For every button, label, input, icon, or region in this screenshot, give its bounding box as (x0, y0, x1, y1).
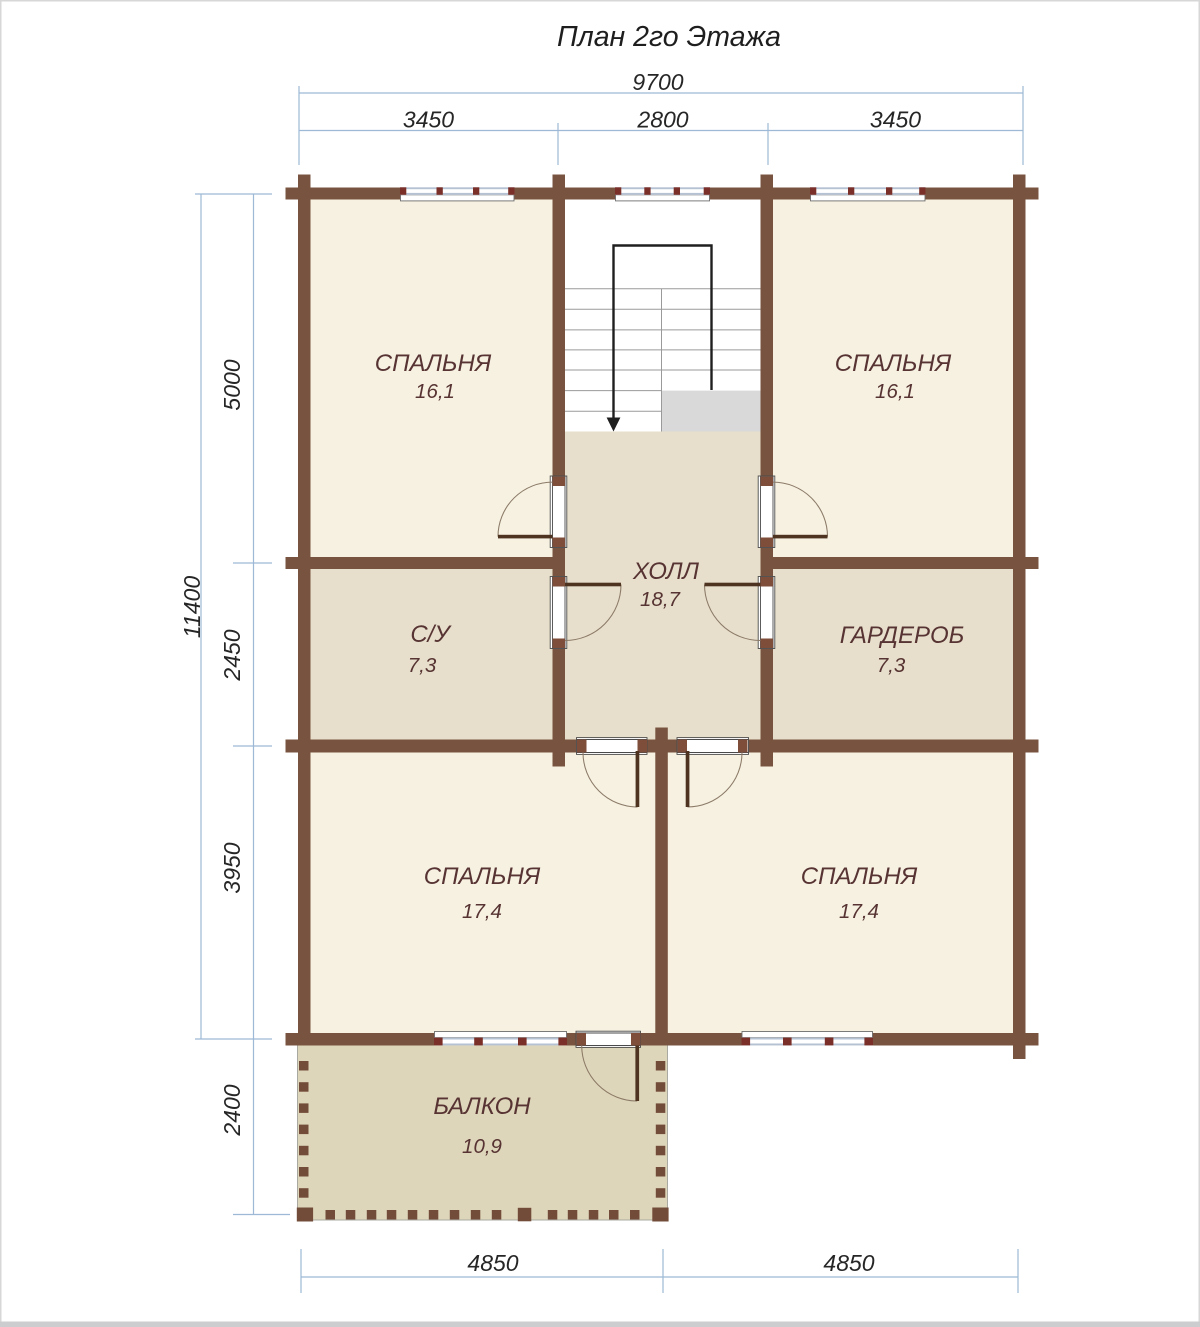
svg-text:16,1: 16,1 (415, 380, 455, 403)
svg-text:ХОЛЛ: ХОЛЛ (632, 558, 700, 585)
svg-text:4850: 4850 (823, 1250, 874, 1276)
svg-text:10,9: 10,9 (462, 1135, 502, 1158)
svg-text:7,3: 7,3 (408, 654, 437, 677)
svg-text:18,7: 18,7 (640, 588, 681, 611)
svg-text:16,1: 16,1 (875, 380, 915, 403)
svg-text:СПАЛЬНЯ: СПАЛЬНЯ (375, 350, 492, 377)
svg-text:9700: 9700 (632, 69, 683, 95)
svg-text:3450: 3450 (870, 107, 921, 133)
svg-text:17,4: 17,4 (462, 900, 502, 923)
svg-text:11400: 11400 (179, 576, 205, 638)
svg-text:БАЛКОН: БАЛКОН (433, 1093, 531, 1120)
svg-text:2800: 2800 (636, 107, 688, 133)
svg-text:2450: 2450 (219, 629, 245, 681)
svg-text:СПАЛЬНЯ: СПАЛЬНЯ (424, 863, 541, 890)
svg-text:2400: 2400 (219, 1084, 245, 1136)
svg-text:17,4: 17,4 (839, 900, 879, 923)
svg-text:СПАЛЬНЯ: СПАЛЬНЯ (835, 350, 952, 377)
svg-text:5000: 5000 (219, 359, 245, 410)
svg-text:План 2го Этажа: План 2го Этажа (557, 21, 781, 53)
svg-text:С/У: С/У (410, 621, 452, 648)
svg-text:4850: 4850 (467, 1250, 518, 1276)
svg-text:3450: 3450 (403, 107, 454, 133)
svg-text:ГАРДЕРОБ: ГАРДЕРОБ (840, 622, 965, 649)
svg-text:7,3: 7,3 (877, 654, 906, 677)
svg-text:СПАЛЬНЯ: СПАЛЬНЯ (801, 863, 918, 890)
svg-text:3950: 3950 (219, 842, 245, 893)
